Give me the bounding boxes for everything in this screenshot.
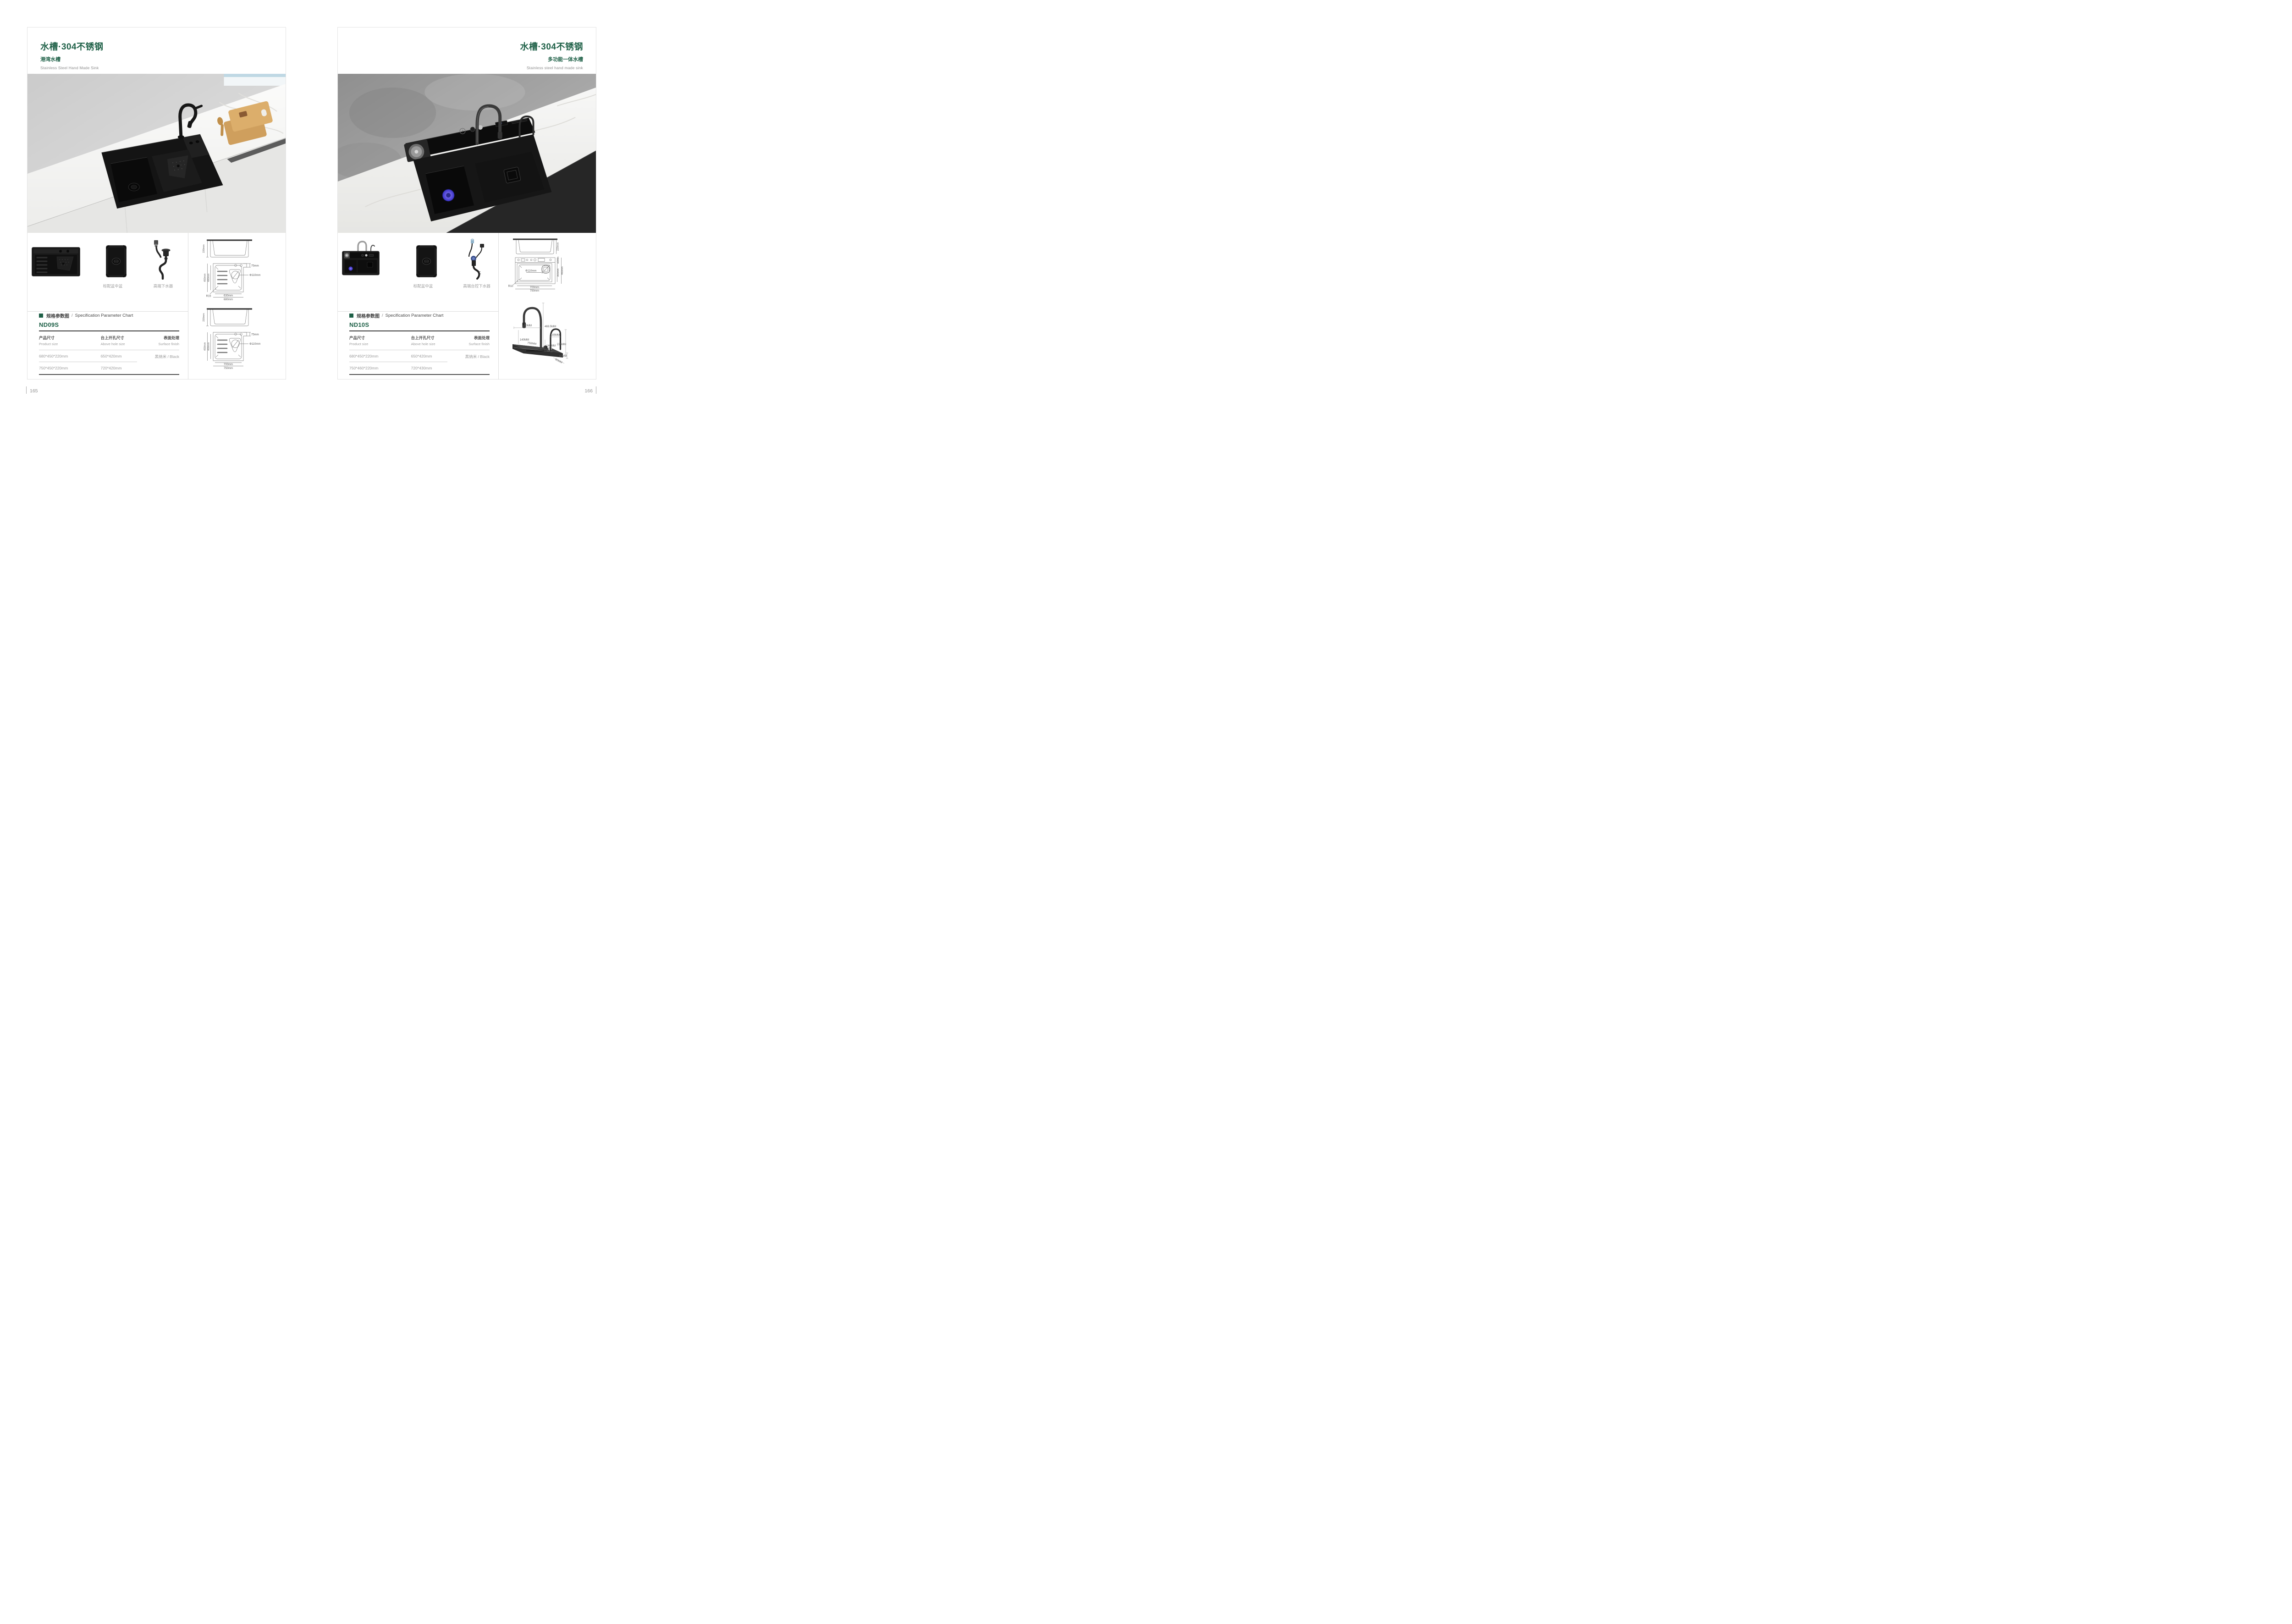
col-product-size-cn: 产品尺寸 [39,335,101,341]
dim-radius: R15 [206,295,211,298]
value-hole-size: 650*420mm [101,354,151,358]
dim-inner-depth: 355mm [557,268,560,277]
value-product-size: 680*450*220mm [39,354,101,358]
rule-heavy [39,330,179,331]
rule-heavy-bottom [39,374,179,375]
thumbnail-sink-faucet-topview [342,239,380,276]
page-subtitle: 多功能一体水槽 [351,55,583,63]
dim-outer-width: 680mm [224,298,233,301]
spec-section: 规格参数图 / Specification Parameter Chart ND… [39,313,179,375]
page-number-tick [26,386,27,394]
dim-drain: Φ110mm [525,270,536,273]
model-number: ND10S [349,322,490,328]
section-title-cn: 规格参数图 [357,312,380,319]
section-bullet-icon [39,314,43,318]
model-number: ND09S [39,322,179,328]
thumbnail-caption-drain: 高端下水器 [138,283,188,289]
dim-faucet-clearance: 140MM [520,339,529,341]
spec-header-row: 产品尺寸 Product size 台上开孔尺寸 Above hole size… [349,335,490,346]
section-title-cn: 规格参数图 [46,312,69,319]
thumbnail-drain-kit-controlled [460,238,488,280]
col-hole-size-en: Above hole size [101,342,151,346]
col-hole-size-cn: 台上开孔尺寸 [411,335,462,341]
rule-partial [39,362,137,362]
thumbnail-caption-basin: 标配盆中盆 [398,283,448,289]
dim-outer-width: 750mm [224,367,233,370]
section-separator: / [72,313,73,318]
dim-faucet-height: 469.5MM [545,325,556,328]
dimension-drawing: 220mm 450mm 400mm 220mm 450mm 400mm 75mm… [188,233,286,380]
sink-scene-illustration [28,74,286,233]
catalog-page-left: 水槽·304不锈钢 港湾水槽 Stainless Steel Hand Made… [27,27,286,380]
dim-deck-height: 40MM [559,355,567,358]
rule-light [39,350,179,350]
dim-inner-depth: 400mm [208,342,210,351]
dim-outer-width: 750mm [530,290,539,292]
page-subtitle: 港湾水槽 [40,55,273,63]
page-number-left: 165 [26,386,38,394]
col-finish-cn: 表面处理 [462,335,490,341]
value-product-size: 680*450*220mm [349,354,411,358]
value-hole-size: 720*430mm [411,366,462,370]
dim-drain: Φ110mm [249,343,260,346]
dim-bar-length: 750MM [527,342,537,346]
thumbnail-inner-basin [105,245,127,278]
spec-section: 规格参数图 / Specification Parameter Chart ND… [349,313,490,375]
value-hole-size: 650*420mm [411,354,462,358]
col-hole-size-en: Above hole size [411,342,462,346]
page-subtitle-en: Stainless steel hand made sink [351,66,583,70]
dim-ledge: 75mm [251,334,259,336]
col-finish-cn: 表面处理 [151,335,179,341]
sink-scene-illustration [338,74,596,233]
dim-inner-depth: 400mm [208,273,210,282]
dim-outer-depth: 450mm [204,342,207,351]
left-header: 水槽·304不锈钢 港湾水槽 Stainless Steel Hand Made… [28,28,286,74]
col-hole-size-cn: 台上开孔尺寸 [101,335,151,341]
section-title-en: Specification Parameter Chart [386,313,444,318]
catalog-page-right: 水槽·304不锈钢 多功能一体水槽 Stainless steel hand m… [337,27,596,380]
page-title: 水槽·304不锈钢 [351,40,583,52]
dim-inner-width: 630mm [224,295,233,297]
value-finish: 黑纳米 / Black [151,354,179,358]
product-photo-hero [338,74,596,233]
rule-heavy [349,330,490,331]
catalog-spread: 水槽·304不锈钢 港湾水槽 Stainless Steel Hand Made… [0,0,623,406]
dim-ledge: 75mm [251,265,259,268]
dim-deck-depth: 80MM [555,358,563,364]
dim-height: 220mm [203,313,205,322]
technical-drawings: 220mm 80mm 355mm 460mm Φ110mm R10 700mm … [499,233,597,380]
page-title: 水槽·304不锈钢 [40,40,273,52]
right-header: 水槽·304不锈钢 多功能一体水槽 Stainless steel hand m… [338,28,596,74]
col-product-size-cn: 产品尺寸 [349,335,411,341]
rule-heavy-bottom [349,374,490,375]
section-separator: / [382,313,383,318]
thumbnail-inner-basin [416,245,437,278]
dim-faucet-reach: 250MM [523,325,532,327]
rule-light [349,350,490,350]
dim-deck: 80mm [557,256,560,264]
value-finish [462,366,490,370]
spec-row: 680*450*220mm 650*420mm 黑纳米 / Black [349,354,490,358]
spec-row: 750*460*220mm 720*430mm [349,366,490,370]
col-product-size-en: Product size [39,342,101,346]
thumbnail-sink-topview [31,247,81,277]
thumbnail-drain-kit [149,239,174,280]
dim-small-height: 225MM [557,343,566,346]
dim-drain: Φ110mm [249,274,260,277]
page-subtitle-en: Stainless Steel Hand Made Sink [40,66,273,70]
spec-header-row: 产品尺寸 Product size 台上开孔尺寸 Above hole size… [39,335,179,346]
col-product-size-en: Product size [349,342,411,346]
dim-small-reach: 145MM [551,334,560,337]
value-finish [151,366,179,370]
spec-row: 750*450*220mm 720*420mm [39,366,179,370]
rule-partial [349,362,447,362]
value-hole-size: 720*420mm [101,366,151,370]
col-finish-en: Surface finish [462,342,490,346]
dim-height: 220mm [557,242,560,251]
value-finish: 黑纳米 / Black [462,354,490,358]
page-number-value: 165 [30,389,38,394]
page-number-right: 166 [584,386,596,394]
spec-row: 680*450*220mm 650*420mm 黑纳米 / Black [39,354,179,358]
product-photo-hero [28,74,286,233]
col-finish-en: Surface finish [151,342,179,346]
dim-small-clearance: 140MM [546,345,556,347]
page-number-tick [596,386,596,394]
dim-inner-width: 700mm [224,363,233,366]
dim-radius: R10 [508,285,513,288]
dim-inner-width: 700mm [530,286,539,289]
thumbnail-caption-drain: 高端台控下水器 [452,283,502,289]
page-number-value: 166 [584,389,593,394]
faucet-dimension-photo [512,303,568,363]
dimension-drawing: 220mm 80mm 355mm 460mm Φ110mm R10 700mm … [499,233,597,380]
section-bullet-icon [349,314,353,318]
technical-drawings: 220mm 450mm 400mm 220mm 450mm 400mm 75mm… [188,233,286,380]
value-product-size: 750*460*220mm [349,366,411,370]
section-title-en: Specification Parameter Chart [75,313,133,318]
dim-outer-depth: 460mm [561,266,564,275]
thumbnail-caption-basin: 标配盆中盆 [88,283,138,289]
value-product-size: 750*450*220mm [39,366,101,370]
dim-outer-depth: 450mm [204,273,207,282]
dim-height: 220mm [203,244,205,253]
